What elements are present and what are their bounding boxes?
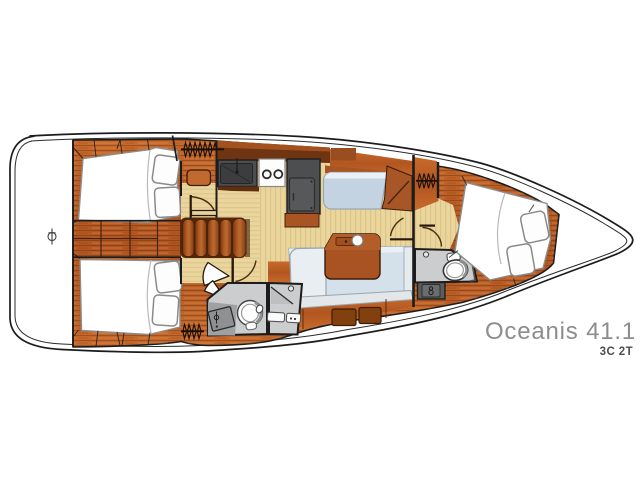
svg-text:3C 2T: 3C 2T	[600, 346, 633, 358]
svg-text:Oceanis 41.1: Oceanis 41.1	[485, 318, 636, 345]
